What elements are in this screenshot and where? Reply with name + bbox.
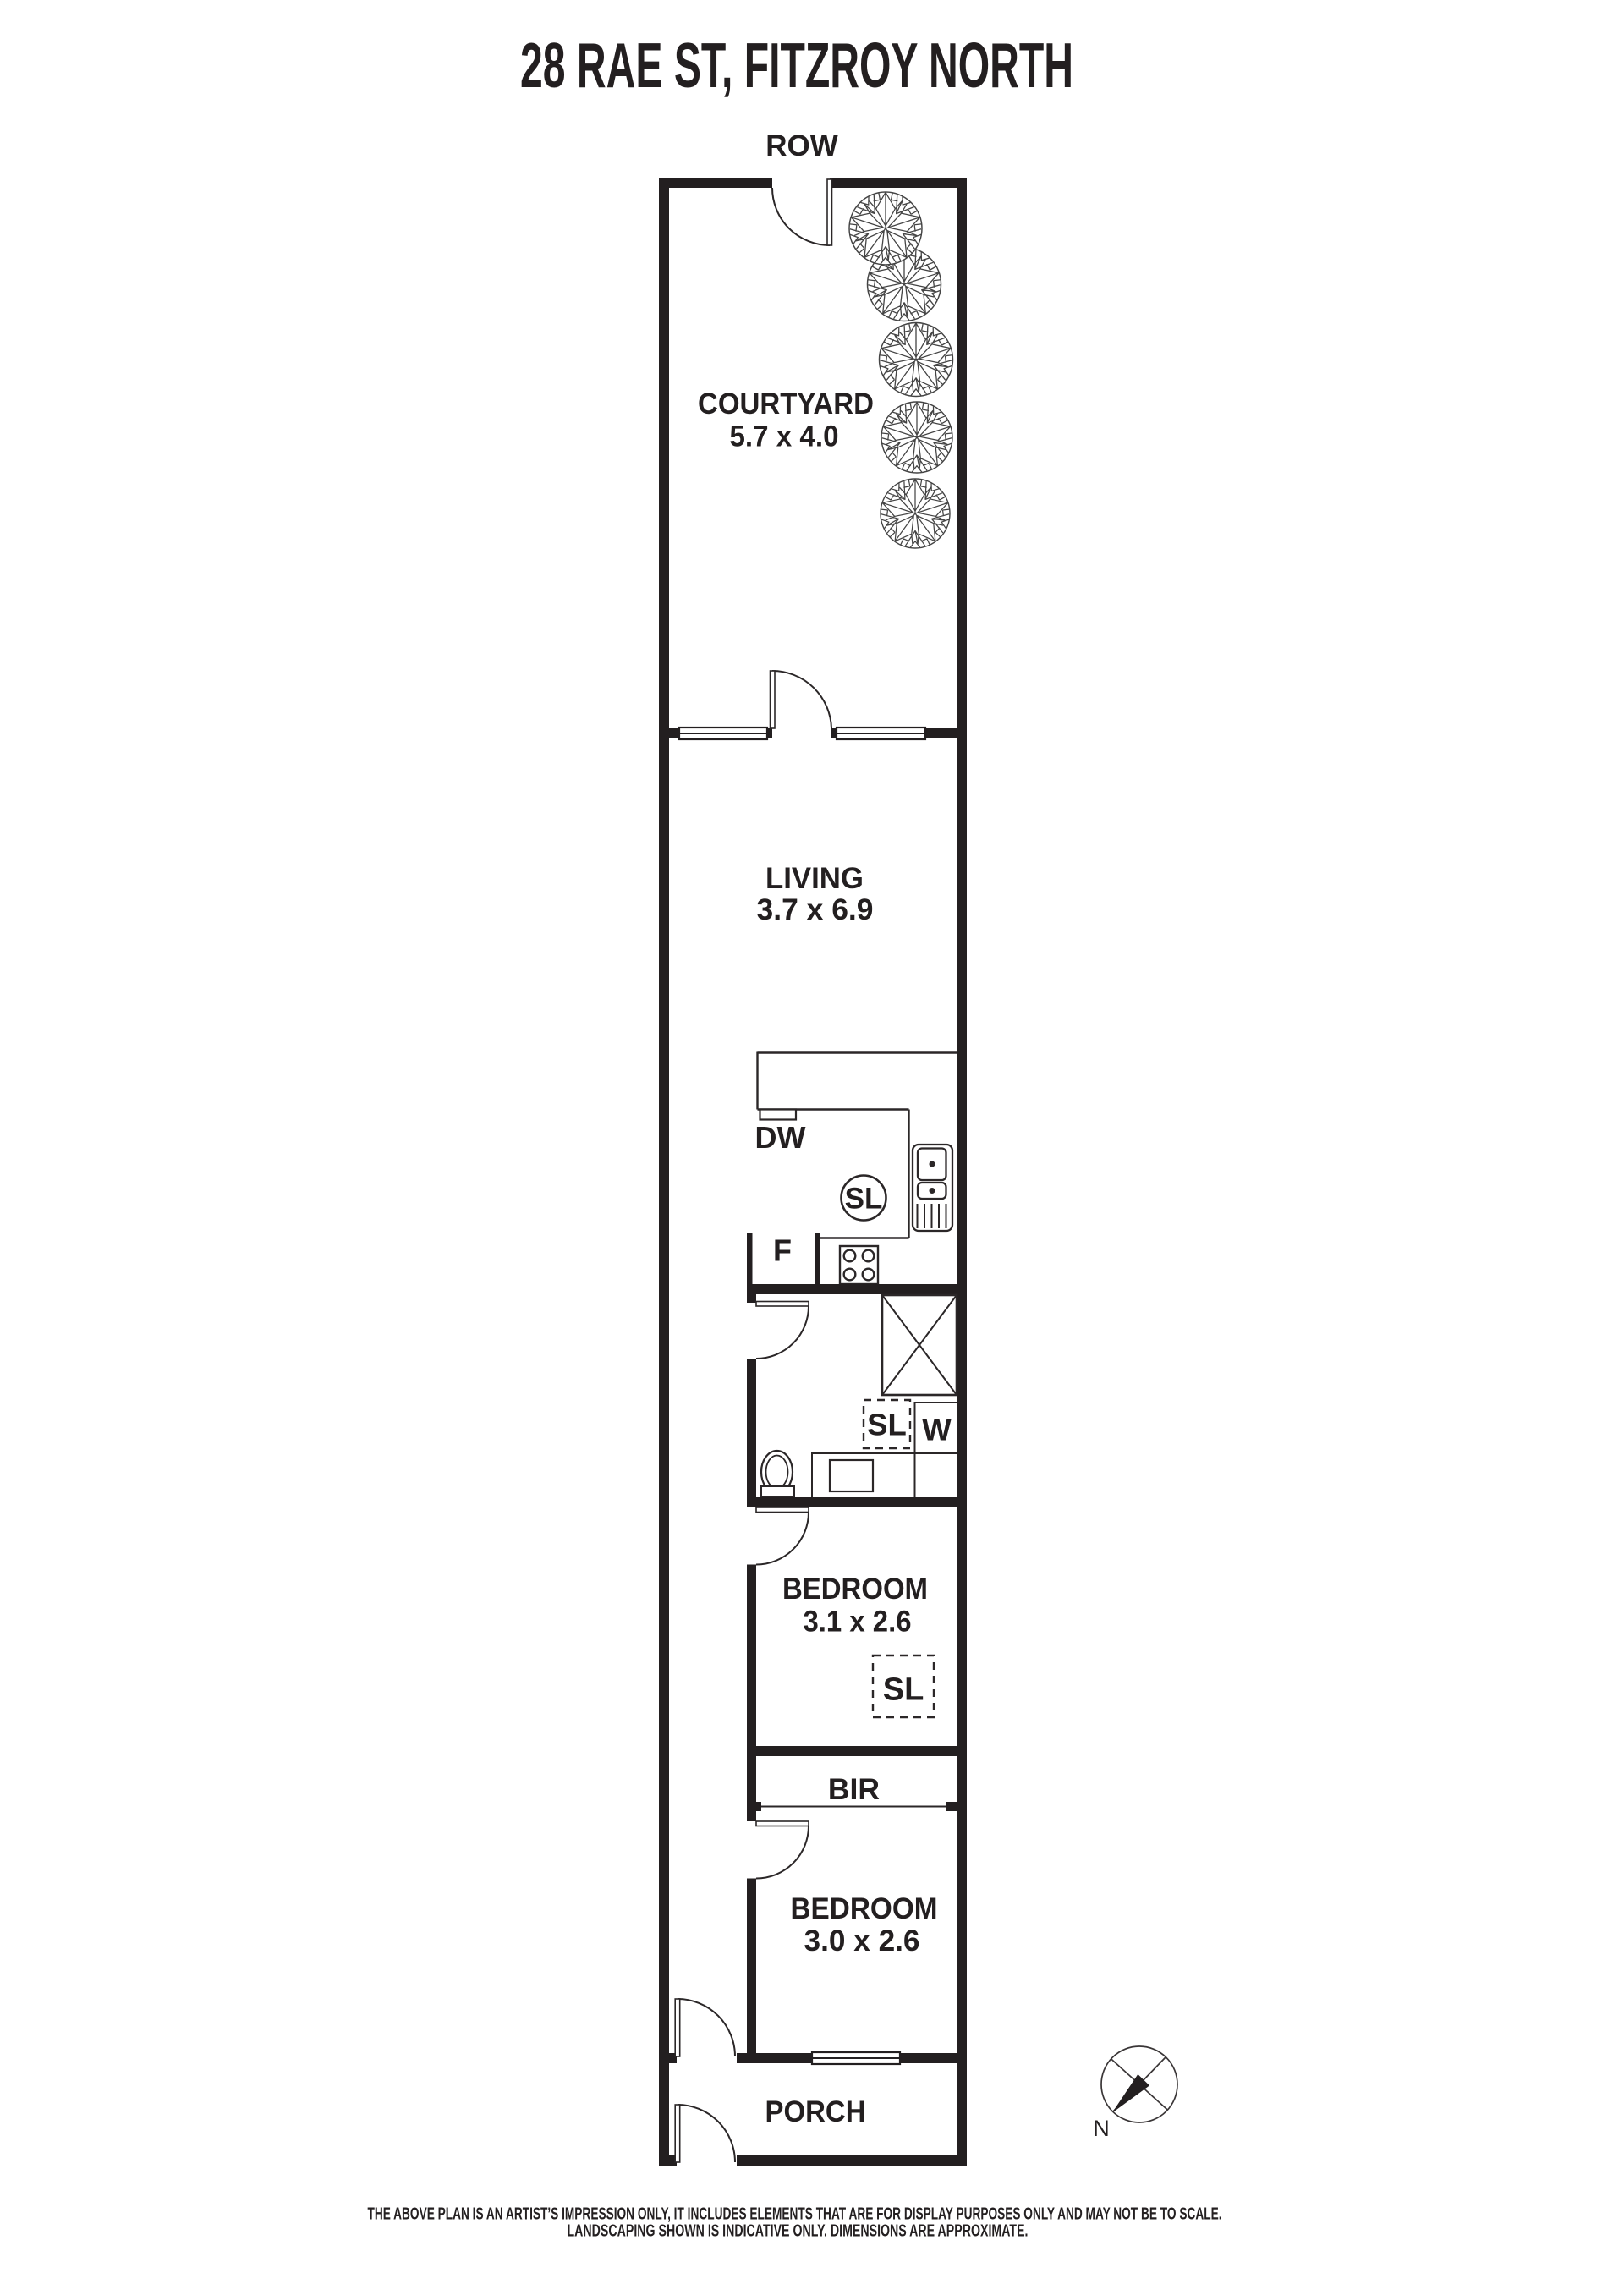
svg-text:3.1 x 2.6: 3.1 x 2.6 [804,1605,912,1639]
svg-text:SL: SL [845,1183,883,1216]
svg-text:ROW: ROW [765,129,838,162]
svg-text:COURTYARD: COURTYARD [698,387,874,420]
svg-text:DW: DW [755,1120,806,1155]
svg-text:5.7 x 4.0: 5.7 x 4.0 [730,420,839,453]
svg-text:W: W [922,1413,952,1447]
svg-text:3.0 x 2.6: 3.0 x 2.6 [804,1924,920,1957]
svg-text:28 RAE ST, FITZROY NORTH: 28 RAE ST, FITZROY NORTH [520,30,1073,101]
svg-text:BEDROOM: BEDROOM [782,1572,928,1606]
svg-text:BIR: BIR [828,1772,880,1806]
svg-text:BEDROOM: BEDROOM [791,1891,938,1925]
svg-text:SL: SL [883,1672,924,1708]
svg-text:N: N [1093,2116,1110,2141]
svg-text:LIVING: LIVING [765,861,864,895]
svg-text:LANDSCAPING SHOWN IS INDICATIV: LANDSCAPING SHOWN IS INDICATIVE ONLY. DI… [568,2221,1029,2241]
svg-text:F: F [773,1233,792,1268]
svg-text:3.7 x 6.9: 3.7 x 6.9 [757,892,874,926]
svg-text:SL: SL [867,1408,907,1442]
svg-text:PORCH: PORCH [765,2095,866,2128]
